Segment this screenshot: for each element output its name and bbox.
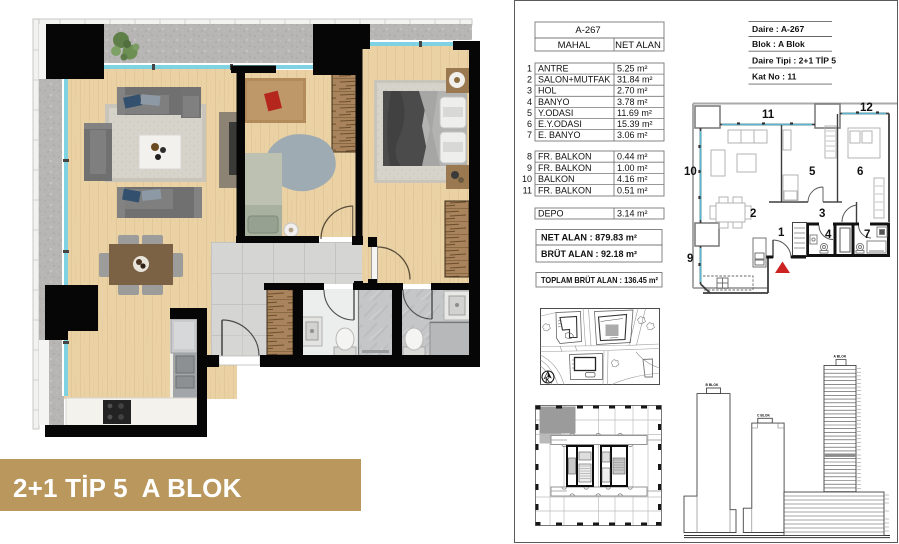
svg-text:4: 4 [527,97,532,107]
svg-text:HOL: HOL [538,86,557,96]
svg-text:5.25 m²: 5.25 m² [617,64,648,74]
svg-text:Y.ODASI: Y.ODASI [538,108,573,118]
svg-text:0.51 m²: 0.51 m² [617,185,648,195]
svg-text:NET ALAN : 879.83 m²: NET ALAN : 879.83 m² [541,233,637,243]
svg-text:2: 2 [527,75,532,85]
svg-text:3: 3 [819,208,825,220]
svg-text:Kat No : 11: Kat No : 11 [752,72,797,82]
svg-text:FR. BALKON: FR. BALKON [538,152,592,162]
svg-text:3.78 m²: 3.78 m² [617,97,648,107]
svg-text:5: 5 [809,166,816,178]
svg-text:1.00 m²: 1.00 m² [617,163,648,173]
svg-text:Daire : A-267: Daire : A-267 [752,24,804,34]
svg-text:5: 5 [527,108,532,118]
svg-text:DEPO: DEPO [538,209,564,219]
svg-text:2+1 TİP 5 A BLOK: 2+1 TİP 5 A BLOK [13,473,242,503]
svg-text:2: 2 [750,208,756,220]
svg-text:BALKON: BALKON [538,174,575,184]
svg-text:4.16 m²: 4.16 m² [617,174,648,184]
svg-text:7: 7 [864,229,870,241]
svg-text:3.06 m²: 3.06 m² [617,130,648,140]
svg-text:7: 7 [527,130,532,140]
svg-text:10: 10 [684,166,697,178]
svg-text:E.Y.ODASI: E.Y.ODASI [538,119,582,129]
svg-text:4: 4 [825,229,832,241]
svg-text:12: 12 [860,102,873,114]
svg-text:MAHAL: MAHAL [558,40,591,51]
svg-text:8: 8 [527,152,532,162]
svg-text:3.14 m²: 3.14 m² [617,209,648,219]
svg-text:11.69 m²: 11.69 m² [617,108,652,118]
svg-text:15.39 m²: 15.39 m² [617,119,653,129]
svg-text:ANTRE: ANTRE [538,64,569,74]
svg-text:9: 9 [687,253,693,265]
svg-text:C BLOK: C BLOK [757,414,770,418]
svg-text:A-267: A-267 [575,25,600,36]
svg-text:0.44 m²: 0.44 m² [617,152,648,162]
svg-text:FR. BALKON: FR. BALKON [538,185,592,195]
svg-text:BRÜT ALAN : 92.18 m²: BRÜT ALAN : 92.18 m² [541,249,637,259]
svg-text:Daire Tipi : 2+1 TİP 5: Daire Tipi : 2+1 TİP 5 [752,56,836,66]
svg-text:B BLOK: B BLOK [706,383,719,387]
svg-text:A BLOK: A BLOK [834,355,847,359]
svg-text:2.70 m²: 2.70 m² [617,86,648,96]
svg-text:1: 1 [527,64,532,74]
svg-text:FR. BALKON: FR. BALKON [538,163,592,173]
svg-text:K: K [545,378,550,384]
svg-text:6: 6 [857,166,863,178]
svg-text:E. BANYO: E. BANYO [538,130,581,140]
svg-text:11: 11 [762,109,775,121]
svg-text:1: 1 [778,227,785,239]
svg-text:TOPLAM BRÜT ALAN : 136.45 m²: TOPLAM BRÜT ALAN : 136.45 m² [541,275,658,285]
svg-text:11: 11 [523,185,532,195]
svg-text:31.84 m²: 31.84 m² [617,75,653,85]
svg-text:10: 10 [522,174,532,184]
svg-text:3: 3 [527,86,532,96]
svg-text:Blok : A Blok: Blok : A Blok [752,39,805,49]
svg-text:SALON+MUTFAK: SALON+MUTFAK [538,75,610,85]
svg-text:9: 9 [527,163,532,173]
svg-text:BANYO: BANYO [538,97,570,107]
svg-text:6: 6 [527,119,532,129]
svg-text:NET ALAN: NET ALAN [615,40,661,51]
